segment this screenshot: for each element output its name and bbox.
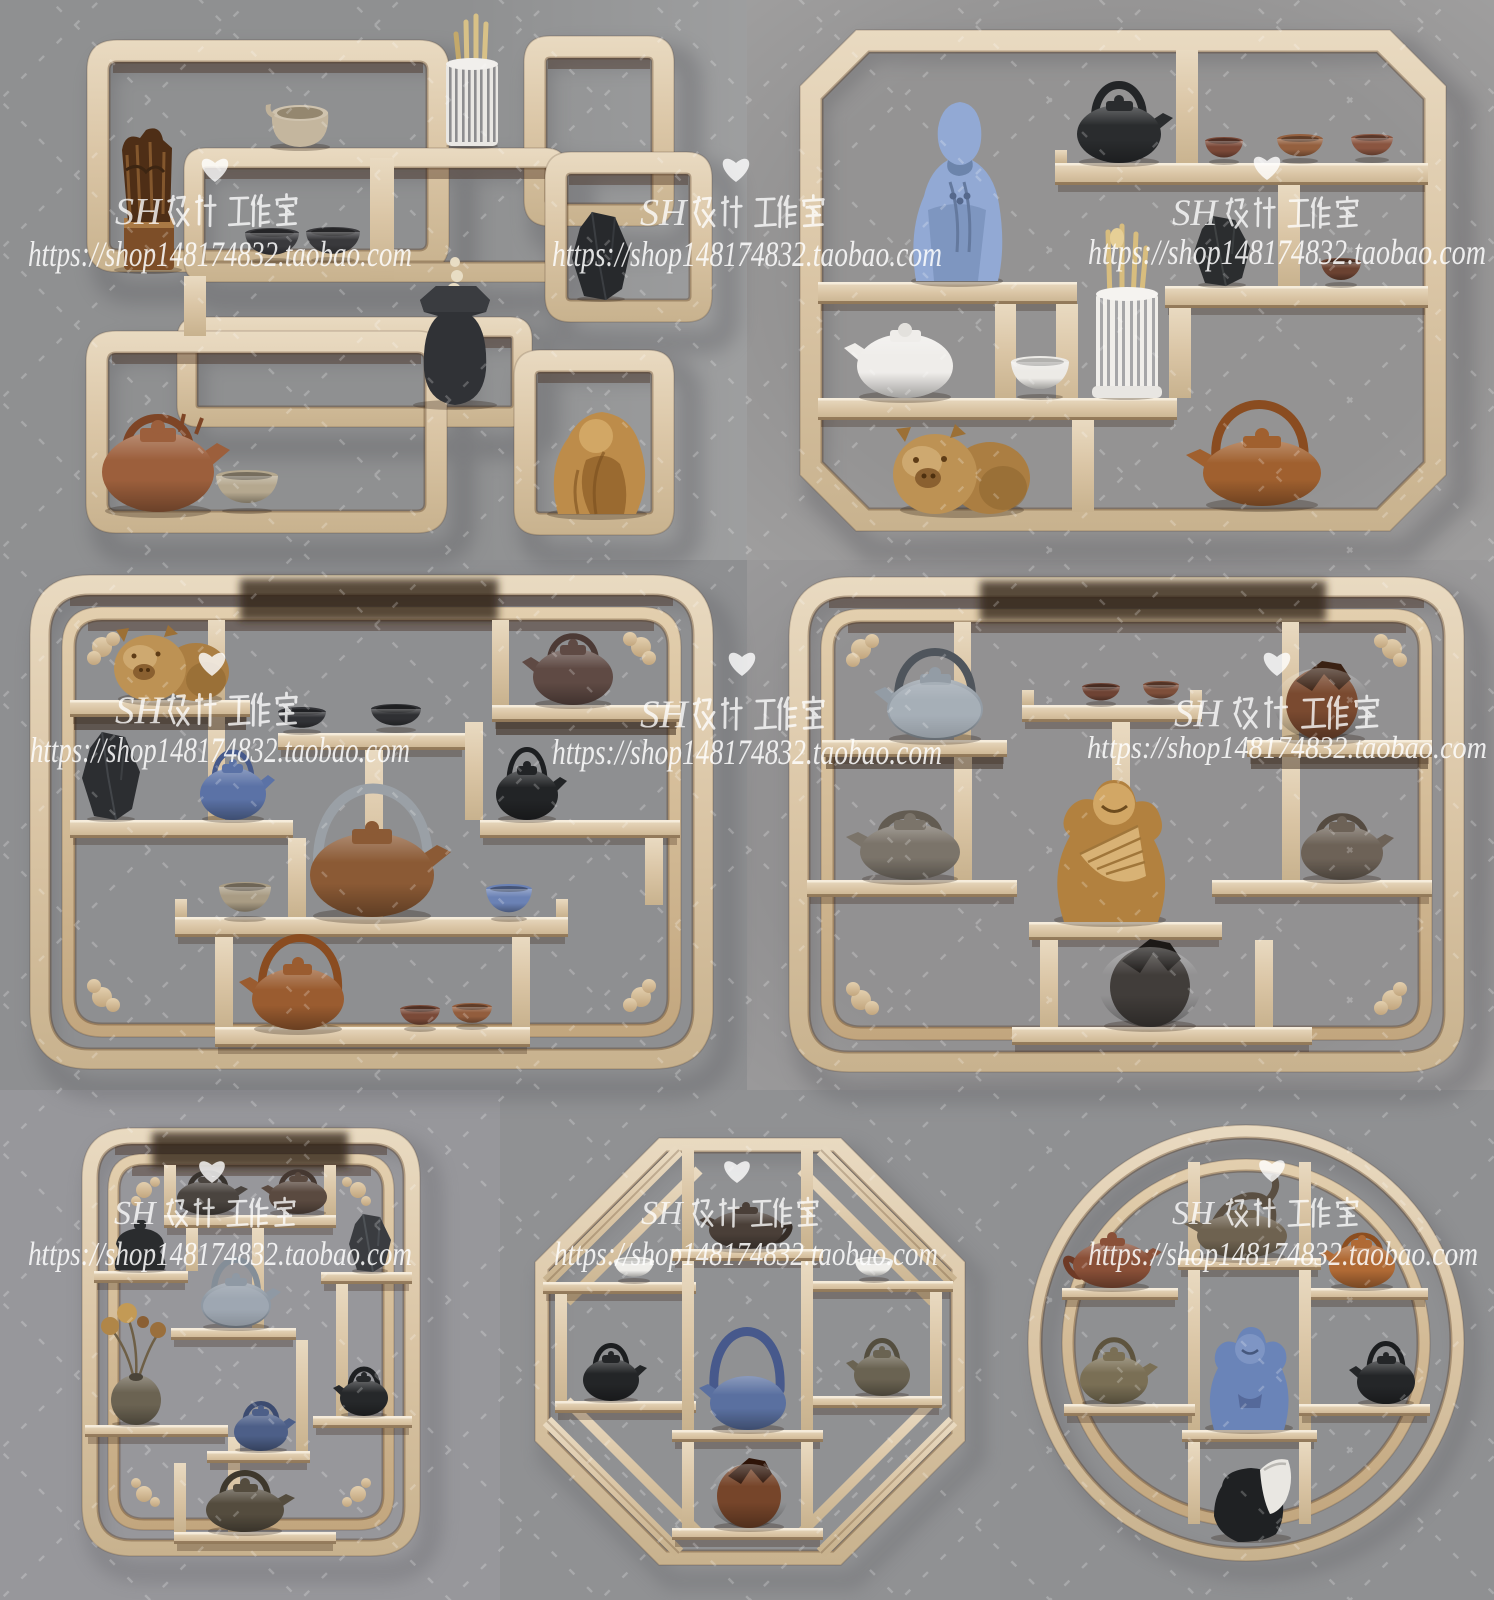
- svg-text:SH: SH: [1172, 1195, 1216, 1232]
- svg-text:SH: SH: [640, 693, 690, 736]
- svg-text:https://shop148174832.taobao.c: https://shop148174832.taobao.com: [28, 1236, 412, 1273]
- svg-text:https://shop148174832.taobao.c: https://shop148174832.taobao.com: [554, 1236, 938, 1273]
- svg-text:https://shop148174832.taobao.c: https://shop148174832.taobao.com: [1088, 1236, 1478, 1273]
- svg-text:https://shop148174832.taobao.c: https://shop148174832.taobao.com: [1088, 232, 1486, 272]
- svg-text:SH: SH: [641, 1195, 685, 1232]
- svg-text:https://shop148174832.taobao.c: https://shop148174832.taobao.com: [28, 234, 412, 274]
- svg-text:https://shop148174832.taobao.c: https://shop148174832.taobao.com: [552, 732, 942, 772]
- svg-text:https://shop148174832.taobao.c: https://shop148174832.taobao.com: [30, 730, 410, 770]
- svg-text:SH: SH: [115, 689, 165, 732]
- svg-text:https://shop148174832.taobao.c: https://shop148174832.taobao.com: [552, 234, 942, 274]
- svg-text:https://shop148174832.taobao.c: https://shop148174832.taobao.com: [1087, 729, 1487, 765]
- svg-text:SH: SH: [114, 1195, 158, 1232]
- svg-text:SH: SH: [1172, 193, 1220, 234]
- svg-text:SH: SH: [640, 192, 689, 234]
- svg-text:SH: SH: [115, 191, 164, 233]
